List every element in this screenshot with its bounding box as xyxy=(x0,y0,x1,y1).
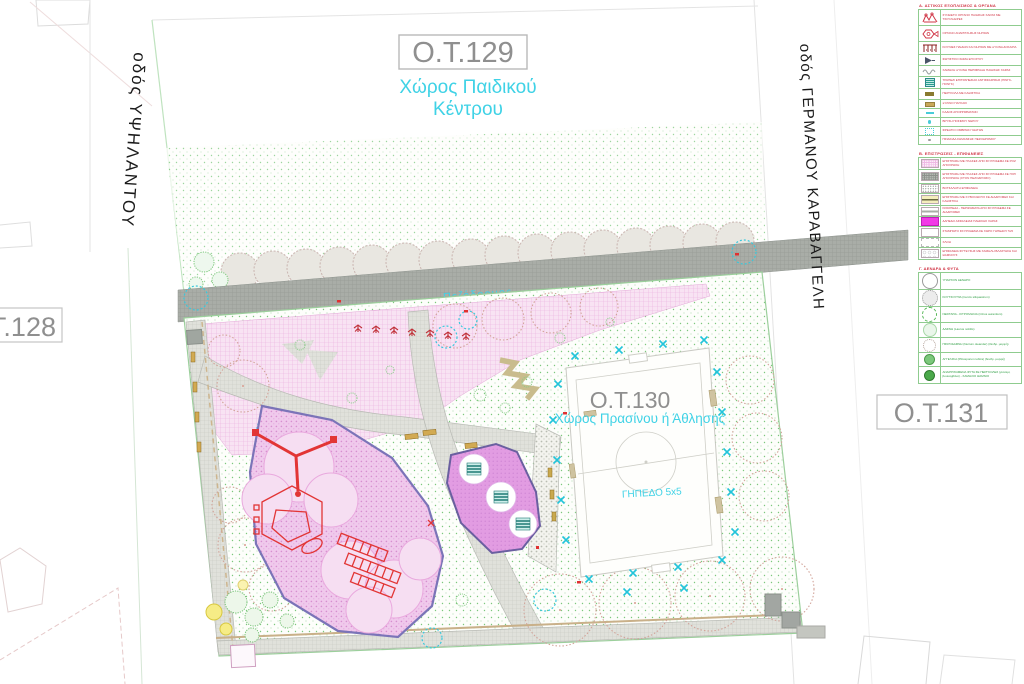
legend-row-label: ΕΠΙΣΤΡΩΣΗ ΜΕ ΠΛΑΚΕΣ ΑΠΟ ΣΚΥΡΟΔΕΜΑ ΣΕ ΓΚΡ… xyxy=(941,172,1021,181)
planting-area-swatch xyxy=(921,249,939,258)
pingpong-table-icon xyxy=(925,78,935,87)
block-ot129-label: Ο.Τ.129 Χώρος Παιδικού Κέντρου xyxy=(399,35,537,120)
bench-icon xyxy=(925,102,935,107)
block-ot131-label: Ο.Τ.131 xyxy=(877,395,1007,429)
kiosk-structure xyxy=(187,329,203,344)
legend-row: ΒΡΥΣΗ ΠΟΣΙΜΟΥ ΝΕΡΟΥ xyxy=(919,118,1021,127)
site-plan-drawing: Πεζόδρομος xyxy=(0,0,1024,684)
fence-icon xyxy=(922,67,938,75)
oleander-icon xyxy=(923,339,936,352)
legend-row-label: ΣΤΑΜΠΩΤΟ ΣΚΥΡΟΔΕΜΑ ΣΕ ΧΩΡΟ ΓΗΠΕΔΟΥ 5x5 xyxy=(941,229,1021,235)
legend-row-label: ΚΑΔΟΣ ΑΠΟΡΡΙΜΜΑΤΩΝ xyxy=(941,110,1021,116)
legend-row: ΔΑΦΝΗ (Laurus nobilis) xyxy=(919,323,1021,338)
legend-row: ΔΑΠΕΔΟ ΑΣΦΑΛΕΙΑΣ ΠΑΙΔΙΚΗΣ ΧΑΡΑΣ xyxy=(919,217,1021,227)
legend-row-label: ΕΠΙΣΤΡΩΣΗ ΜΕ ΚΥΒΟΛΙΘΟΥΣ ΣΕ ΔΙΑΔΡΟΜΕΣ ΚΑΙ… xyxy=(941,195,1021,204)
legend-row-label: ΠΙΚΡΟΔΑΦΝΗ (Nerium oleander) (δενδρ. μορ… xyxy=(941,342,1021,348)
legend-row: ΚΡΑΣΠΕΔΑ - ΠΕΡΙΖΩΜΑΤΑ ΑΠΟ ΣΚΥΡΟΔΕΜΑ ΣΕ Δ… xyxy=(919,206,1021,217)
cobblestone-swatch xyxy=(921,195,939,204)
ot129-subtitle-1: Χώρος Παιδικού xyxy=(399,77,536,98)
legend-row: ΦΡΕΑΤΙΟ ΟΜΒΡΙΩΝ ΥΔΑΤΩΝ xyxy=(919,127,1021,136)
legend-row: ΚΟΥΤΣΟΥΠΙΑ (Cercis siliquastrum) xyxy=(919,290,1021,307)
legend-row: ΦΩΤΙΣΤΙΚΟ ΣΩΜΑ ΕΠΙ ΙΣΤΟΥ xyxy=(919,55,1021,66)
legend-row-label: ΞΥΛΙΝΟ ΠΑΓΚΑΚΙ xyxy=(941,101,1021,107)
legend-row-label: ΔΑΠΕΔΟ ΑΣΦΑΛΕΙΑΣ ΠΑΙΔΙΚΗΣ ΧΑΡΑΣ xyxy=(941,219,1021,225)
legend-row-label: ΚΡΑΣΠΕΔΑ - ΠΕΡΙΖΩΜΑΤΑ ΑΠΟ ΣΚΥΡΟΔΕΜΑ ΣΕ Δ… xyxy=(941,206,1021,215)
legend-row: ΧΛΟΗ xyxy=(919,238,1021,248)
legend-row-label: ΔΑΦΝΗ (Laurus nobilis) xyxy=(941,327,1021,333)
existing-tree-icon xyxy=(922,273,938,289)
legend-row: ΕΠΙΣΤΡΩΣΗ ΜΕ ΚΥΒΟΛΙΘΟΥΣ ΣΕ ΔΙΑΔΡΟΜΕΣ ΚΑΙ… xyxy=(919,194,1021,206)
legend-row-label: ΦΩΤΙΣΤΙΚΟ ΣΩΜΑ ΕΠΙ ΙΣΤΟΥ xyxy=(941,57,1021,63)
yellow-shrub xyxy=(206,604,222,620)
legend-row-label: ΒΡΥΣΗ ΠΟΣΙΜΟΥ ΝΕΡΟΥ xyxy=(941,119,1021,125)
legend-row-label: ΕΠΙΦΑΝΕΙΑ ΦΥΤΕΥΣΗΣ ΜΕ ΧΑΜΗΛΗ ΒΛΑΣΤΗΣΗ ΚΑ… xyxy=(941,249,1021,258)
legend-row: ΚΑΔΟΣ ΑΠΟΡΡΙΜΜΑΤΩΝ xyxy=(919,109,1021,118)
legend-row: ΑΝΑΡΡΙΧΩΜΕΝΑ ΦΥΤΑ ΣΕ ΠΕΡΓΚΟΛΕΣ (γιασεμί,… xyxy=(919,367,1021,384)
legend-row: ΕΠΙΣΤΡΩΣΗ ΜΕ ΠΛΑΚΕΣ ΑΠΟ ΣΚΥΡΟΔΕΜΑ ΣΕ ΡΟΖ… xyxy=(919,158,1021,170)
lawn-swatch xyxy=(921,238,939,247)
street-left-label: οδός ΥΨΗΛΑΝΤΟΥ xyxy=(118,52,149,229)
legend: Α. ΑΣΤΙΚΟΣ ΕΞΟΠΛΙΣΜΟΣ & ΟΡΓΑΝΑ ΣΥΝΘΕΤΟ Ο… xyxy=(918,2,1022,390)
legend-row: ΤΡΑΠΕΖΙ ΕΠΙΤΡΑΠΕΖΙΑΣ ΑΝΤΙΣΦΑΙΡΙΣΗΣ (ΠΙΝΓ… xyxy=(919,77,1021,89)
legend-row: ΥΠΑΡΧΟΝ ΔΕΝΔΡΟ xyxy=(919,273,1021,290)
light-pole-icon xyxy=(924,56,936,65)
legend-row-label: ΥΠΑΡΧΟΝ ΔΕΝΔΡΟ xyxy=(941,278,1021,284)
site-plan-canvas: Πεζόδρομος xyxy=(0,0,1024,684)
legend-row: ΧΑΜΗΛΗ ΞΥΛΙΝΗ ΠΕΡΙΦΡΑΞΗ ΠΑΙΔΙΚΗΣ ΧΑΡΑΣ xyxy=(919,66,1021,77)
pittosporum-icon xyxy=(924,354,935,365)
bitter-orange-tree-icon xyxy=(922,307,937,322)
climbing-plants-icon xyxy=(924,370,935,381)
trash-bin-icon xyxy=(926,112,934,115)
legend-row: ΚΟΥΝΙΕΣ ΠΑΙΔΩΝ ΚΑΙ ΝΗΠΙΩΝ ΜΕ ΞΥΛΙΝΑ ΔΟΚΑ… xyxy=(919,42,1021,55)
legend-row: ΑΓΓΕΛΙΚΗ (Pittosporum tobira) (δενδρ. μο… xyxy=(919,353,1021,367)
legend-row-label: ΚΟΥΤΣΟΥΠΙΑ (Cercis siliquastrum) xyxy=(941,295,1021,301)
legend-row: ΕΠΙΣΤΡΩΣΗ ΜΕ ΠΛΑΚΕΣ ΑΠΟ ΣΚΥΡΟΔΕΜΑ ΣΕ ΓΚΡ… xyxy=(919,170,1021,184)
legend-row: ΠΙΝΑΚΙΔΑ ΣΗΜΑΝΣΗΣ ΠΕΖΟΔΡΟΜΟΥ xyxy=(919,136,1021,145)
legend-row: ΠΕΡΓΚΟΛΑ ΜΕ ΚΑΘΙΣΤΙΚΑ xyxy=(919,89,1021,100)
legend-section-c: ΥΠΑΡΧΟΝ ΔΕΝΔΡΟ ΚΟΥΤΣΟΥΠΙΑ (Cercis siliqu… xyxy=(918,272,1022,384)
legend-row: ΠΙΚΡΟΔΑΦΝΗ (Nerium oleander) (δενδρ. μορ… xyxy=(919,338,1021,353)
street-right-label: οδός ΓΕΡΜΑΝΟΥ ΚΑΡΑΒΑΓΓΕΛΗ xyxy=(796,43,827,310)
legend-row-label: ΚΟΥΝΙΕΣ ΠΑΙΔΩΝ ΚΑΙ ΝΗΠΙΩΝ ΜΕ ΞΥΛΙΝΑ ΔΟΚΑ… xyxy=(941,45,1021,51)
legend-row: ΣΥΝΘΕΤΟ ΟΡΓΑΝΟ ΠΑΙΔΙΚΗΣ ΧΑΡΑΣ ΜΕ ΤΣΟΥΛΗΘ… xyxy=(919,10,1021,26)
legend-row-label: ΧΑΜΗΛΗ ΞΥΛΙΝΗ ΠΕΡΙΦΡΑΞΗ ΠΑΙΔΙΚΗΣ ΧΑΡΑΣ xyxy=(941,68,1021,74)
legend-section-b: ΕΠΙΣΤΡΩΣΗ ΜΕ ΠΛΑΚΕΣ ΑΠΟ ΣΚΥΡΟΔΕΜΑ ΣΕ ΡΟΖ… xyxy=(918,157,1022,260)
legend-section-c-header: Γ. ΔΕΝΔΡΑ & ΦΥΤΑ xyxy=(919,266,1022,271)
legend-row-label: ΟΡΓΑΝΟ ΑΝΑΡΡΙΧΗΣΗΣ ΝΗΠΙΩΝ xyxy=(941,31,1021,37)
laurel-tree-icon xyxy=(923,323,937,337)
legend-row: ΕΠΙΦΑΝΕΙΑ ΦΥΤΕΥΣΗΣ ΜΕ ΧΑΜΗΛΗ ΒΛΑΣΤΗΣΗ ΚΑ… xyxy=(919,248,1021,260)
legend-row-label: ΧΛΟΗ xyxy=(941,240,1021,246)
yellow-shrub xyxy=(238,580,248,590)
drinking-fountain-icon xyxy=(928,120,932,124)
climbing-unit-icon xyxy=(921,28,939,40)
legend-row: ΟΡΓΑΝΟ ΑΝΑΡΡΙΧΗΣΗΣ ΝΗΠΙΩΝ xyxy=(919,26,1021,42)
legend-section-a-header: Α. ΑΣΤΙΚΟΣ ΕΞΟΠΛΙΣΜΟΣ & ΟΡΓΑΝΑ xyxy=(919,3,1022,8)
sign-icon xyxy=(928,139,931,142)
ot130-number: Ο.Τ.130 xyxy=(590,387,671,413)
ot129-subtitle-2: Κέντρου xyxy=(433,99,503,120)
legend-row-label: ΑΝΑΡΡΙΧΩΜΕΝΑ ΦΥΤΑ ΣΕ ΠΕΡΓΚΟΛΕΣ (γιασεμί,… xyxy=(941,370,1021,379)
composite-play-unit-icon xyxy=(921,11,939,24)
legend-row-label: ΠΙΝΑΚΙΔΑ ΣΗΜΑΝΣΗΣ ΠΕΖΟΔΡΟΜΟΥ xyxy=(941,137,1021,143)
gravel-swatch xyxy=(921,184,939,193)
legend-row-label: ΣΥΝΘΕΤΟ ΟΡΓΑΝΟ ΠΑΙΔΙΚΗΣ ΧΑΡΑΣ ΜΕ ΤΣΟΥΛΗΘ… xyxy=(941,13,1021,22)
legend-row-label: ΠΕΡΓΚΟΛΑ ΜΕ ΚΑΘΙΣΤΙΚΑ xyxy=(941,91,1021,97)
ot128-number: Ο.Τ.128 xyxy=(0,312,56,342)
grey-pavers-swatch xyxy=(921,172,939,181)
stamped-concrete-swatch xyxy=(921,228,939,237)
block-ot128-label: Ο.Τ.128 xyxy=(0,308,62,342)
legend-row: ΒΟΤΣΑΛΩΤΗ ΕΠΙΦΑΝΕΙΑ xyxy=(919,184,1021,194)
pergola-icon xyxy=(925,92,934,96)
pink-pavers-swatch xyxy=(921,159,939,168)
judas-tree-icon xyxy=(922,290,938,306)
legend-section-b-header: Β. ΕΠΙΣΤΡΩΣΕΙΣ - ΕΠΙΦΑΝΕΙΕΣ xyxy=(919,151,1022,156)
legend-row: ΞΥΛΙΝΟ ΠΑΓΚΑΚΙ xyxy=(919,100,1021,109)
legend-row: ΣΤΑΜΠΩΤΟ ΣΚΥΡΟΔΕΜΑ ΣΕ ΧΩΡΟ ΓΗΠΕΔΟΥ 5x5 xyxy=(919,227,1021,238)
safety-floor-swatch xyxy=(921,217,939,226)
ot130-subtitle: Χώρος Πρασίνου ή Άθλησης xyxy=(555,411,726,426)
legend-row-label: ΒΟΤΣΑΛΩΤΗ ΕΠΙΦΑΝΕΙΑ xyxy=(941,186,1021,192)
legend-section-a: ΣΥΝΘΕΤΟ ΟΡΓΑΝΟ ΠΑΙΔΙΚΗΣ ΧΑΡΑΣ ΜΕ ΤΣΟΥΛΗΘ… xyxy=(918,9,1022,145)
yellow-shrub xyxy=(220,623,232,635)
ot129-number: Ο.Τ.129 xyxy=(412,37,514,69)
legend-row-label: ΝΕΡΑΤΖΙΑ - ΚΙΤΡΟΜΗΛΙΑ (Citrus aurantium) xyxy=(941,312,1021,318)
ot131-number: Ο.Τ.131 xyxy=(894,398,989,428)
legend-row-label: ΑΓΓΕΛΙΚΗ (Pittosporum tobira) (δενδρ. μο… xyxy=(941,357,1021,363)
legend-row: ΝΕΡΑΤΖΙΑ - ΚΙΤΡΟΜΗΛΙΑ (Citrus aurantium) xyxy=(919,307,1021,323)
curb-swatch xyxy=(921,207,939,216)
drain-grate-icon xyxy=(925,128,934,135)
pergola-square xyxy=(230,644,255,667)
legend-row-label: ΕΠΙΣΤΡΩΣΗ ΜΕ ΠΛΑΚΕΣ ΑΠΟ ΣΚΥΡΟΔΕΜΑ ΣΕ ΡΟΖ… xyxy=(941,159,1021,168)
legend-row-label: ΤΡΑΠΕΖΙ ΕΠΙΤΡΑΠΕΖΙΑΣ ΑΝΤΙΣΦΑΙΡΙΣΗΣ (ΠΙΝΓ… xyxy=(941,78,1021,87)
legend-row-label: ΦΡΕΑΤΙΟ ΟΜΒΡΙΩΝ ΥΔΑΤΩΝ xyxy=(941,128,1021,134)
swings-icon xyxy=(921,42,939,54)
